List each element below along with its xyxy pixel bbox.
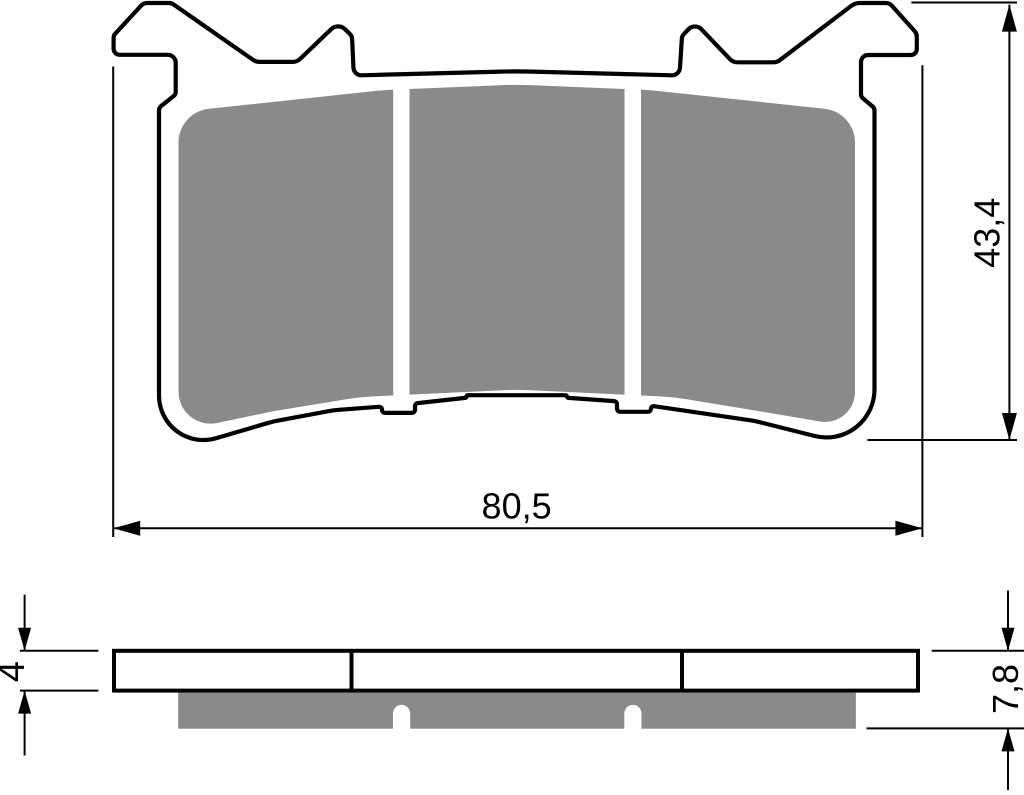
svg-text:80,5: 80,5 bbox=[482, 486, 552, 527]
svg-text:43,4: 43,4 bbox=[966, 198, 1007, 268]
svg-text:7,8: 7,8 bbox=[985, 664, 1024, 714]
svg-text:4: 4 bbox=[0, 661, 33, 682]
